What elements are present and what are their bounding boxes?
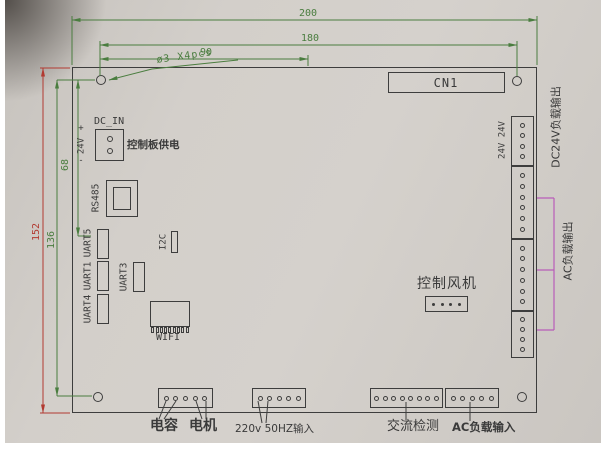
dc-in-label: DC_IN	[94, 117, 124, 127]
uart5-label: UART5	[83, 229, 93, 258]
pin	[460, 396, 465, 401]
dc-in-minus-label: -	[78, 157, 83, 166]
pin	[441, 303, 444, 306]
pin	[458, 303, 461, 306]
dc24v-output-label: DC24V负载输出	[551, 86, 562, 168]
pin	[374, 396, 379, 401]
pin	[193, 396, 198, 401]
mounting-hole-top-right	[512, 76, 522, 86]
pin	[520, 154, 525, 159]
pin	[202, 396, 207, 401]
pin	[107, 136, 113, 142]
pin	[183, 396, 188, 401]
pin	[520, 278, 525, 283]
uart3-label: UART3	[119, 263, 129, 292]
motor-label: 电机	[189, 419, 217, 433]
pin	[425, 396, 430, 401]
pin	[164, 396, 169, 401]
dc-in-connector	[95, 129, 124, 161]
i2c-connector	[171, 231, 178, 253]
pin	[286, 396, 291, 401]
pin	[520, 133, 525, 138]
fan-connector	[425, 296, 468, 312]
ac-output-label: AC负载输出	[563, 221, 574, 280]
bottom-connector-mains	[252, 388, 306, 408]
mounting-hole-bottom-right	[517, 392, 527, 402]
pin	[520, 173, 525, 178]
dc-in-voltage-label: 24V	[78, 138, 87, 154]
mains-input-label: 220v 50HZ输入	[235, 424, 314, 435]
v24-label: 24V 24V	[499, 121, 508, 159]
uart1-label: UART1	[83, 262, 93, 291]
right-connector-block-4	[511, 311, 534, 358]
fan-label: 控制风机	[417, 277, 477, 291]
pin	[520, 205, 525, 210]
rs485-label: RS485	[91, 184, 101, 213]
pin	[520, 227, 525, 232]
pin	[186, 327, 189, 333]
dim-152-label: 152	[32, 223, 42, 241]
pin	[520, 144, 525, 149]
mounting-hole-bottom-left	[93, 392, 103, 402]
power-note-label: 控制板供电	[127, 140, 180, 151]
dc-in-plus-label: +	[78, 125, 83, 134]
pin	[479, 396, 484, 401]
pin	[520, 327, 525, 332]
pin	[520, 347, 525, 352]
bottom-connector-ac-load	[445, 388, 499, 408]
pin	[520, 256, 525, 261]
pin	[432, 303, 435, 306]
pin	[400, 396, 405, 401]
i2c-label: I2C	[160, 234, 169, 250]
pin	[107, 148, 113, 154]
right-connector-block-3	[511, 239, 534, 311]
wifi-module	[150, 301, 190, 327]
pin	[520, 337, 525, 342]
pin	[470, 396, 475, 401]
uart1-connector	[97, 261, 109, 291]
pin	[408, 396, 413, 401]
pin	[391, 396, 396, 401]
pin	[520, 317, 525, 322]
pin	[489, 396, 494, 401]
dim-136-label: 136	[47, 231, 57, 249]
pin	[520, 289, 525, 294]
pin	[451, 396, 456, 401]
pin	[449, 303, 452, 306]
right-connector-block-2	[511, 166, 534, 239]
pin	[520, 299, 525, 304]
mounting-hole-top-left	[96, 75, 106, 85]
pin	[173, 396, 178, 401]
dim-200-label: 200	[299, 9, 317, 19]
pin	[520, 195, 525, 200]
dim-180-label: 180	[301, 34, 319, 44]
pin	[258, 396, 263, 401]
rs485-module-inner	[113, 187, 131, 210]
pin	[520, 123, 525, 128]
cn1-label: CN1	[434, 77, 459, 89]
pin	[383, 396, 388, 401]
pin	[520, 246, 525, 251]
board-outline	[72, 67, 537, 413]
uart5-connector	[97, 229, 109, 259]
ac-detect-label: 交流检测	[387, 420, 439, 433]
pin	[181, 327, 184, 333]
pin	[151, 327, 154, 333]
pin	[520, 216, 525, 221]
pin	[296, 396, 301, 401]
bottom-connector-ac-detect	[370, 388, 443, 408]
uart4-label: UART4	[83, 295, 93, 324]
uart3-connector	[133, 262, 145, 292]
ac-load-input-label: AC负载输入	[452, 422, 515, 434]
pin	[417, 396, 422, 401]
pin	[520, 267, 525, 272]
uart4-connector	[97, 294, 109, 324]
pin	[520, 184, 525, 189]
right-connector-block-24v	[511, 116, 534, 166]
wifi-label: WIFI	[156, 333, 180, 343]
dim-68-label: 68	[61, 159, 71, 171]
pin	[277, 396, 282, 401]
capacitor-label: 电容	[150, 419, 178, 433]
bottom-connector-cap-motor	[158, 388, 213, 408]
cad-screenshot: 200 180 90 152 136 68 ø3 X4pcs CN1 DC_IN…	[0, 0, 601, 452]
pin	[267, 396, 272, 401]
pin	[434, 396, 439, 401]
